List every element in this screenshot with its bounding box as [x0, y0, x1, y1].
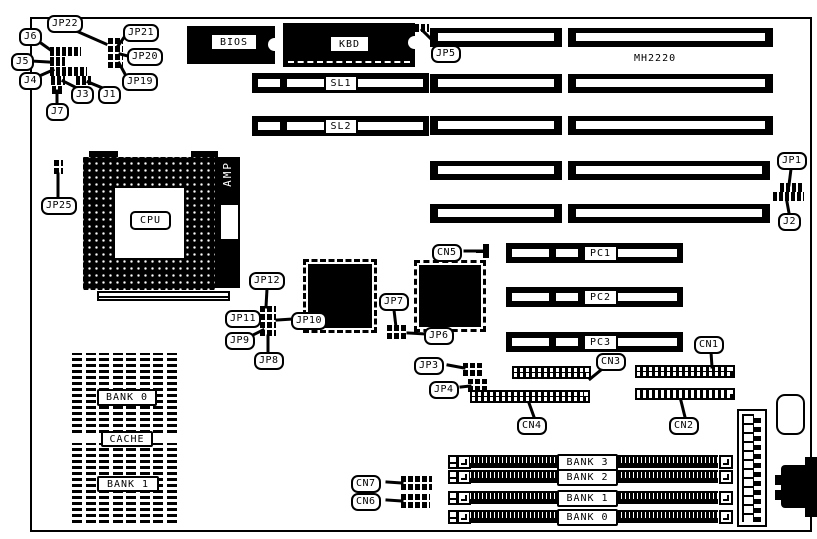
callout-j4: J4 [19, 72, 42, 90]
callout-j5: J5 [11, 53, 34, 71]
callout-j2: J2 [778, 213, 801, 231]
callout-jp6: JP6 [424, 327, 454, 345]
callout-jp20: JP20 [127, 48, 163, 66]
callout-cn6: CN6 [351, 493, 381, 511]
callout-jp12: JP12 [249, 272, 285, 290]
callout-j1: J1 [98, 86, 121, 104]
callout-j3: J3 [71, 86, 94, 104]
callout-jp22: JP22 [47, 15, 83, 33]
callout-jp19: JP19 [122, 73, 158, 91]
motherboard-diagram: BIOS KBD MH2220 SL1 SL2 PC1 PC2 [0, 0, 817, 539]
callout-jp10: JP10 [291, 312, 327, 330]
callout-cn3: CN3 [596, 353, 626, 371]
callout-cn5: CN5 [432, 244, 462, 262]
callout-jp5: JP5 [431, 45, 461, 63]
callout-jp3: JP3 [414, 357, 444, 375]
callout-jp8: JP8 [254, 352, 284, 370]
callout-jp7: JP7 [379, 293, 409, 311]
callout-j6: J6 [19, 28, 42, 46]
callout-jp25: JP25 [41, 197, 77, 215]
callout-cn1: CN1 [694, 336, 724, 354]
callout-jp9: JP9 [225, 332, 255, 350]
callout-jp11: JP11 [225, 310, 261, 328]
callout-jp1: JP1 [777, 152, 807, 170]
callout-cn2: CN2 [669, 417, 699, 435]
callout-j7: J7 [46, 103, 69, 121]
callout-jp21: JP21 [123, 24, 159, 42]
callout-cn4: CN4 [517, 417, 547, 435]
callout-jp4: JP4 [429, 381, 459, 399]
callout-cn7: CN7 [351, 475, 381, 493]
